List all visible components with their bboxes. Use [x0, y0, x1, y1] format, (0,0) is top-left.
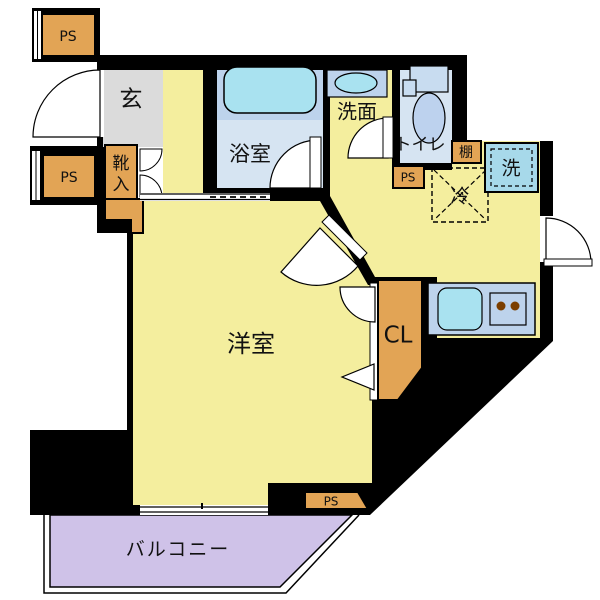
toilet-label: トイレ	[395, 135, 446, 155]
burner-right	[511, 302, 520, 311]
shelf-label: 棚	[459, 145, 473, 161]
ps-left-label: PS	[60, 170, 77, 186]
washer-label: 洗	[501, 158, 520, 180]
shoe-cabinet-label-2: 入	[113, 175, 130, 195]
kitchen-door-leaf	[544, 259, 592, 266]
ps-top-label: PS	[59, 29, 76, 45]
ps-bottom-label: PS	[324, 495, 339, 509]
western-room-label: 洋室	[227, 330, 275, 358]
bathroom-door-leaf	[310, 137, 321, 188]
kitchen-sink	[438, 288, 482, 330]
bathtub	[224, 67, 316, 113]
washroom-label: 洗面	[337, 100, 377, 124]
washroom-door-leaf	[383, 117, 393, 158]
entry-door-arc	[33, 70, 100, 137]
floor-plan-page: 玄 浴室 洗面 トイレ 棚 洗 冷 洋室 CL バルコニー 靴 入 PS PS …	[0, 0, 600, 600]
balcony-label: バルコニー	[126, 539, 231, 561]
fridge-label: 冷	[450, 186, 469, 208]
washbasin	[335, 73, 377, 93]
genkan-label: 玄	[120, 87, 143, 113]
toilet-handle	[403, 80, 416, 96]
closet-label: CL	[384, 323, 413, 349]
shoe-cabinet-label-1: 靴	[113, 154, 130, 174]
bathroom-label: 浴室	[229, 142, 271, 166]
burner-left	[497, 302, 506, 311]
ps-toilet-label: PS	[401, 171, 416, 185]
floor-plan: 玄 浴室 洗面 トイレ 棚 洗 冷 洋室 CL バルコニー 靴 入 PS PS …	[0, 0, 600, 600]
hallway-floor	[163, 70, 203, 196]
kitchen-door-arc	[546, 218, 591, 263]
